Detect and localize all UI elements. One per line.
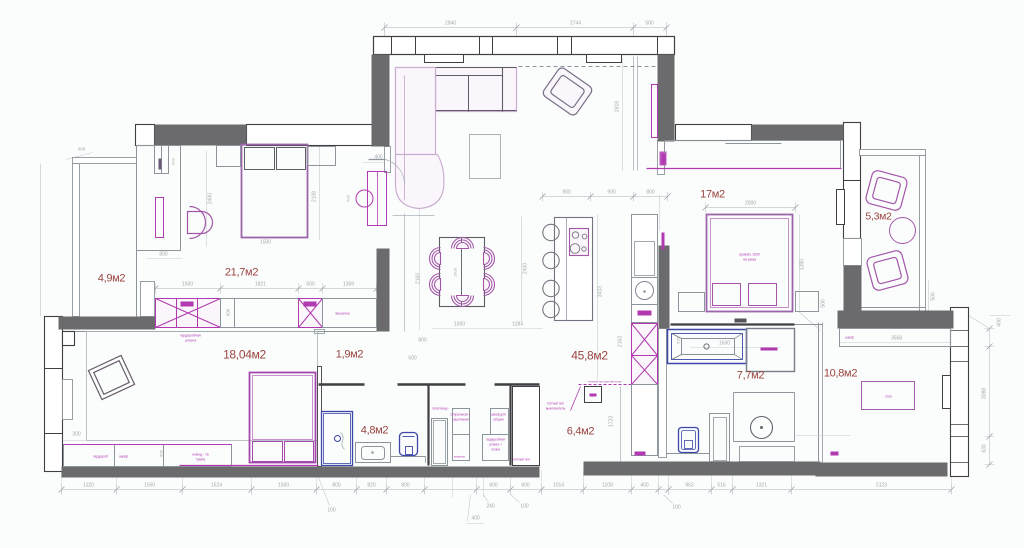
svg-text:теплый пол: теплый пол bbox=[513, 458, 530, 462]
svg-text:1723: 1723 bbox=[609, 416, 615, 427]
svg-text:800: 800 bbox=[159, 252, 168, 258]
svg-text:4,8м2: 4,8м2 bbox=[361, 425, 389, 437]
svg-text:шкаф: шкаф bbox=[845, 336, 854, 340]
svg-text:2400: 2400 bbox=[523, 263, 529, 274]
svg-text:1000: 1000 bbox=[454, 322, 465, 328]
svg-text:900: 900 bbox=[562, 190, 571, 196]
svg-text:2400: 2400 bbox=[208, 193, 214, 204]
svg-text:полки: полки bbox=[491, 448, 500, 452]
svg-text:3568: 3568 bbox=[891, 336, 902, 342]
svg-text:500: 500 bbox=[931, 292, 937, 301]
svg-text:6,4м2: 6,4м2 bbox=[567, 426, 595, 438]
svg-text:стиральная +: стиральная + bbox=[451, 413, 471, 417]
svg-text:1320: 1320 bbox=[83, 483, 94, 489]
svg-text:600: 600 bbox=[226, 308, 231, 316]
svg-text:сушильная: сушильная bbox=[452, 418, 469, 422]
svg-text:100: 100 bbox=[520, 504, 529, 510]
svg-text:1550: 1550 bbox=[144, 483, 155, 489]
svg-text:1284: 1284 bbox=[512, 322, 523, 328]
svg-text:800: 800 bbox=[401, 483, 410, 489]
svg-text:выключатель: выключатель bbox=[546, 407, 566, 411]
svg-text:5,3м2: 5,3м2 bbox=[865, 211, 892, 223]
svg-text:500: 500 bbox=[821, 299, 827, 308]
svg-text:на заказ: на заказ bbox=[743, 258, 757, 262]
svg-text:400: 400 bbox=[640, 483, 649, 489]
svg-text:500: 500 bbox=[408, 356, 417, 362]
svg-text:500: 500 bbox=[306, 282, 315, 288]
svg-text:1821: 1821 bbox=[255, 282, 266, 288]
svg-text:штанга: штанга bbox=[185, 339, 196, 343]
svg-text:3088: 3088 bbox=[982, 388, 988, 399]
svg-text:600: 600 bbox=[489, 483, 498, 489]
svg-text:100: 100 bbox=[672, 505, 681, 511]
svg-text:18,04м2: 18,04м2 bbox=[223, 348, 266, 362]
svg-text:уборки: уборки bbox=[493, 418, 503, 422]
svg-text:2000: 2000 bbox=[745, 201, 756, 207]
svg-text:зеркало: зеркало bbox=[454, 455, 466, 459]
svg-text:2940: 2940 bbox=[445, 21, 456, 27]
svg-text:21,7м2: 21,7м2 bbox=[225, 267, 258, 279]
svg-text:2744: 2744 bbox=[570, 21, 581, 27]
svg-text:2108: 2108 bbox=[312, 191, 318, 202]
svg-text:630: 630 bbox=[982, 444, 988, 453]
svg-text:7,7м2: 7,7м2 bbox=[737, 370, 765, 382]
svg-text:633: 633 bbox=[171, 157, 176, 164]
svg-text:1524: 1524 bbox=[211, 483, 222, 489]
svg-text:600: 600 bbox=[159, 449, 164, 456]
svg-text:1,9м2: 1,9м2 bbox=[336, 349, 364, 361]
svg-text:вешалка: вешалка bbox=[335, 312, 349, 316]
svg-text:100: 100 bbox=[327, 508, 336, 514]
svg-text:1500: 1500 bbox=[260, 240, 271, 246]
svg-text:1500: 1500 bbox=[182, 282, 193, 288]
svg-text:800: 800 bbox=[646, 190, 655, 196]
svg-text:1600: 1600 bbox=[453, 267, 458, 277]
svg-text:2163: 2163 bbox=[618, 336, 624, 347]
svg-text:2818: 2818 bbox=[615, 101, 621, 112]
svg-text:900: 900 bbox=[607, 190, 616, 196]
svg-text:1108: 1108 bbox=[602, 483, 613, 489]
svg-text:516: 516 bbox=[717, 483, 726, 489]
svg-text:1500: 1500 bbox=[278, 483, 289, 489]
svg-text:шкаф для: шкаф для bbox=[491, 413, 506, 417]
svg-text:кровать 1600: кровать 1600 bbox=[739, 253, 760, 257]
svg-text:гардеробная: гардеробная bbox=[180, 334, 201, 338]
svg-text:240: 240 bbox=[486, 504, 495, 510]
svg-text:17м2: 17м2 bbox=[700, 189, 725, 201]
svg-text:10,8м2: 10,8м2 bbox=[824, 368, 857, 380]
svg-text:1369: 1369 bbox=[343, 282, 354, 288]
svg-text:400: 400 bbox=[78, 147, 86, 152]
svg-text:800: 800 bbox=[418, 338, 427, 344]
svg-text:963: 963 bbox=[685, 483, 694, 489]
svg-text:стол: стол bbox=[885, 395, 892, 399]
svg-text:1630: 1630 bbox=[719, 341, 730, 347]
svg-text:3413: 3413 bbox=[598, 286, 604, 297]
svg-text:400: 400 bbox=[471, 516, 480, 522]
svg-text:полотенце-: полотенце- bbox=[432, 407, 449, 411]
svg-text:теплый пол датчик пола: теплый пол датчик пола bbox=[588, 380, 622, 384]
svg-text:1014: 1014 bbox=[553, 483, 564, 489]
svg-text:600: 600 bbox=[521, 483, 530, 489]
svg-text:4,9м2: 4,9м2 bbox=[98, 273, 126, 285]
svg-text:1390: 1390 bbox=[800, 259, 806, 270]
svg-text:1321: 1321 bbox=[756, 483, 767, 489]
svg-text:45,8м2: 45,8м2 bbox=[571, 349, 608, 363]
svg-text:5123: 5123 bbox=[876, 483, 887, 489]
svg-text:600: 600 bbox=[346, 194, 351, 201]
svg-text:820: 820 bbox=[367, 483, 376, 489]
svg-text:гардероб: гардероб bbox=[93, 455, 108, 459]
svg-text:800: 800 bbox=[332, 483, 341, 489]
svg-text:400: 400 bbox=[997, 318, 1003, 327]
svg-text:комод - тв: комод - тв bbox=[192, 453, 209, 457]
svg-text:теплый пол: теплый пол bbox=[547, 402, 564, 406]
svg-text:штанга +: штанга + bbox=[489, 443, 502, 447]
svg-text:300: 300 bbox=[72, 432, 81, 438]
svg-text:тумба: тумба bbox=[196, 458, 206, 462]
svg-text:2160: 2160 bbox=[416, 273, 422, 284]
svg-text:500: 500 bbox=[645, 21, 654, 27]
svg-text:шкаф: шкаф bbox=[119, 455, 128, 459]
svg-text:гардеробная: гардеробная bbox=[486, 438, 505, 442]
